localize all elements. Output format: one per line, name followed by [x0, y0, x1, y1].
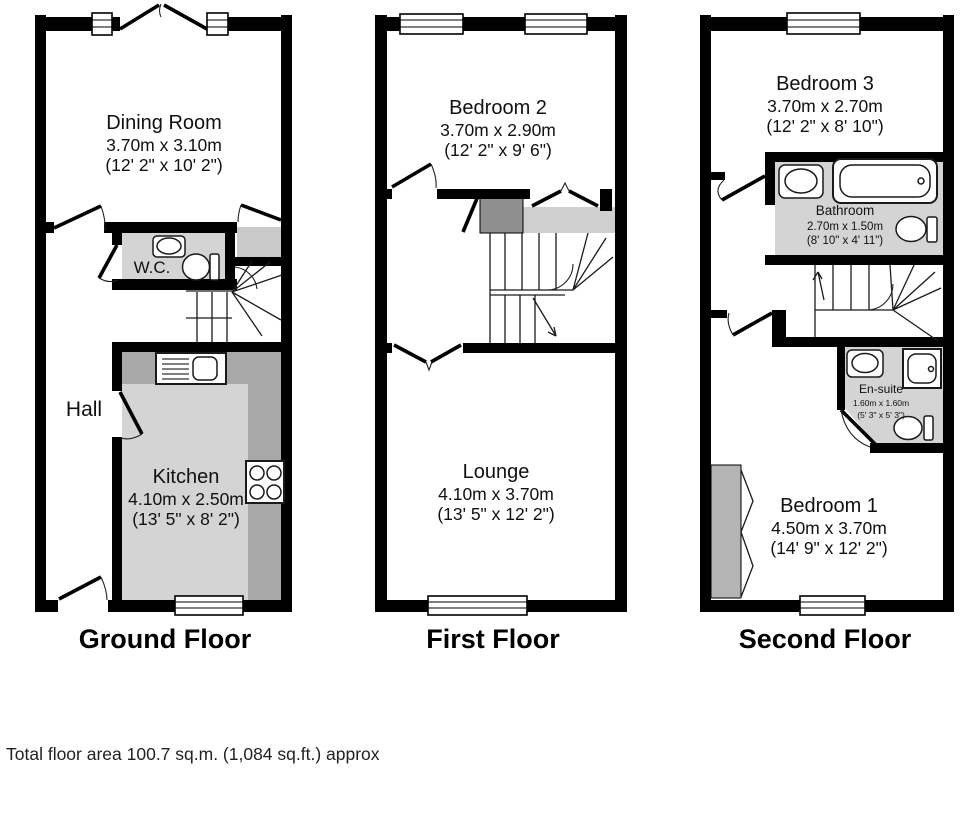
- wc-label: W.C.: [134, 258, 171, 277]
- bathroom-toilet: [896, 217, 937, 243]
- room-dims-metric: 1.60m x 1.60m: [853, 397, 909, 409]
- first-floor-title: First Floor: [426, 624, 560, 654]
- room-dims-metric: 2.70m x 1.50m: [807, 220, 883, 234]
- bedroom1-label: Bedroom 1 4.50m x 3.70m (14' 9" x 12' 2"…: [770, 495, 887, 558]
- front-door-swing: [59, 577, 107, 600]
- wc-toilet: [183, 254, 220, 280]
- window: [525, 14, 587, 34]
- ensuite-sink: [847, 350, 883, 377]
- room-dims-imperial: (13' 5" x 12' 2"): [437, 504, 554, 524]
- room-name: Bedroom 3: [766, 73, 883, 96]
- room-name: En-suite: [853, 383, 909, 397]
- door-swing: [54, 206, 105, 231]
- window: [400, 14, 463, 34]
- room-dims-imperial: (12' 2" x 9' 6"): [440, 140, 556, 160]
- window: [787, 13, 860, 34]
- dining-room-label: Dining Room 3.70m x 3.10m (12' 2" x 10' …: [105, 112, 222, 175]
- double-door: [394, 345, 461, 370]
- wardrobe-doors: [741, 470, 753, 597]
- room-dims-metric: 4.10m x 2.50m: [128, 489, 244, 509]
- cupboard-door: [463, 196, 478, 232]
- room-dims-imperial: (5' 3" x 5' 3"): [853, 409, 909, 421]
- bathroom-label: Bathroom 2.70m x 1.50m (8' 10" x 4' 11"): [807, 202, 883, 248]
- window: [428, 596, 527, 615]
- room-name: Lounge: [437, 461, 554, 484]
- stairs: [813, 263, 941, 341]
- room-dims-imperial: (14' 9" x 12' 2"): [770, 538, 887, 558]
- room-dims-imperial: (12' 2" x 8' 10"): [766, 116, 883, 136]
- total-floor-area-text: Total floor area 100.7 sq.m. (1,084 sq.f…: [6, 744, 380, 765]
- door-swing: [728, 313, 772, 335]
- room-name: Bathroom: [807, 202, 883, 220]
- room-name: Bedroom 1: [770, 495, 887, 518]
- room-dims-metric: 3.70m x 2.70m: [766, 96, 883, 116]
- window: [800, 596, 865, 615]
- room-dims-metric: 3.70m x 3.10m: [105, 135, 222, 155]
- room-dims-metric: 4.10m x 3.70m: [437, 484, 554, 504]
- room-name: Hall: [66, 398, 102, 421]
- stairs: [490, 233, 613, 343]
- ground-floor-title: Ground Floor: [79, 624, 251, 654]
- window: [207, 13, 228, 35]
- bedroom3-label: Bedroom 3 3.70m x 2.70m (12' 2" x 8' 10"…: [766, 73, 883, 136]
- bedroom2-label: Bedroom 2 3.70m x 2.90m (12' 2" x 9' 6"): [440, 97, 556, 160]
- window: [92, 13, 112, 35]
- door-swing: [99, 245, 118, 282]
- room-dims-imperial: (13' 5" x 8' 2"): [128, 509, 244, 529]
- lounge-label: Lounge 4.10m x 3.70m (13' 5" x 12' 2"): [437, 461, 554, 524]
- room-name: Bedroom 2: [440, 97, 556, 120]
- floorplan-canvas: Dining Room 3.70m x 3.10m (12' 2" x 10' …: [0, 0, 980, 837]
- double-door: [532, 183, 598, 206]
- door-swing: [392, 164, 436, 188]
- ensuite-label: En-suite 1.60m x 1.60m (5' 3" x 5' 3"): [853, 383, 909, 421]
- room-dims-metric: 3.70m x 2.90m: [440, 120, 556, 140]
- door-swing: [718, 176, 765, 200]
- room-dims-imperial: (8' 10" x 4' 11"): [807, 234, 883, 248]
- room-dims-metric: 4.50m x 3.70m: [770, 518, 887, 538]
- hall-label: Hall: [66, 398, 102, 421]
- window: [175, 596, 243, 615]
- kitchen-sink: [156, 353, 226, 384]
- bathroom-sink: [779, 165, 823, 198]
- kitchen-label: Kitchen 4.10m x 2.50m (13' 5" x 8' 2"): [128, 466, 244, 529]
- room-name: Dining Room: [105, 112, 222, 135]
- hob: [246, 461, 284, 503]
- french-doors: [120, 4, 207, 29]
- bathtub: [833, 159, 937, 203]
- room-name: W.C.: [134, 258, 171, 277]
- second-floor-title: Second Floor: [739, 624, 912, 654]
- wc-sink: [153, 236, 185, 257]
- door-swing: [238, 205, 281, 222]
- room-name: Kitchen: [128, 466, 244, 489]
- room-dims-imperial: (12' 2" x 10' 2"): [105, 155, 222, 175]
